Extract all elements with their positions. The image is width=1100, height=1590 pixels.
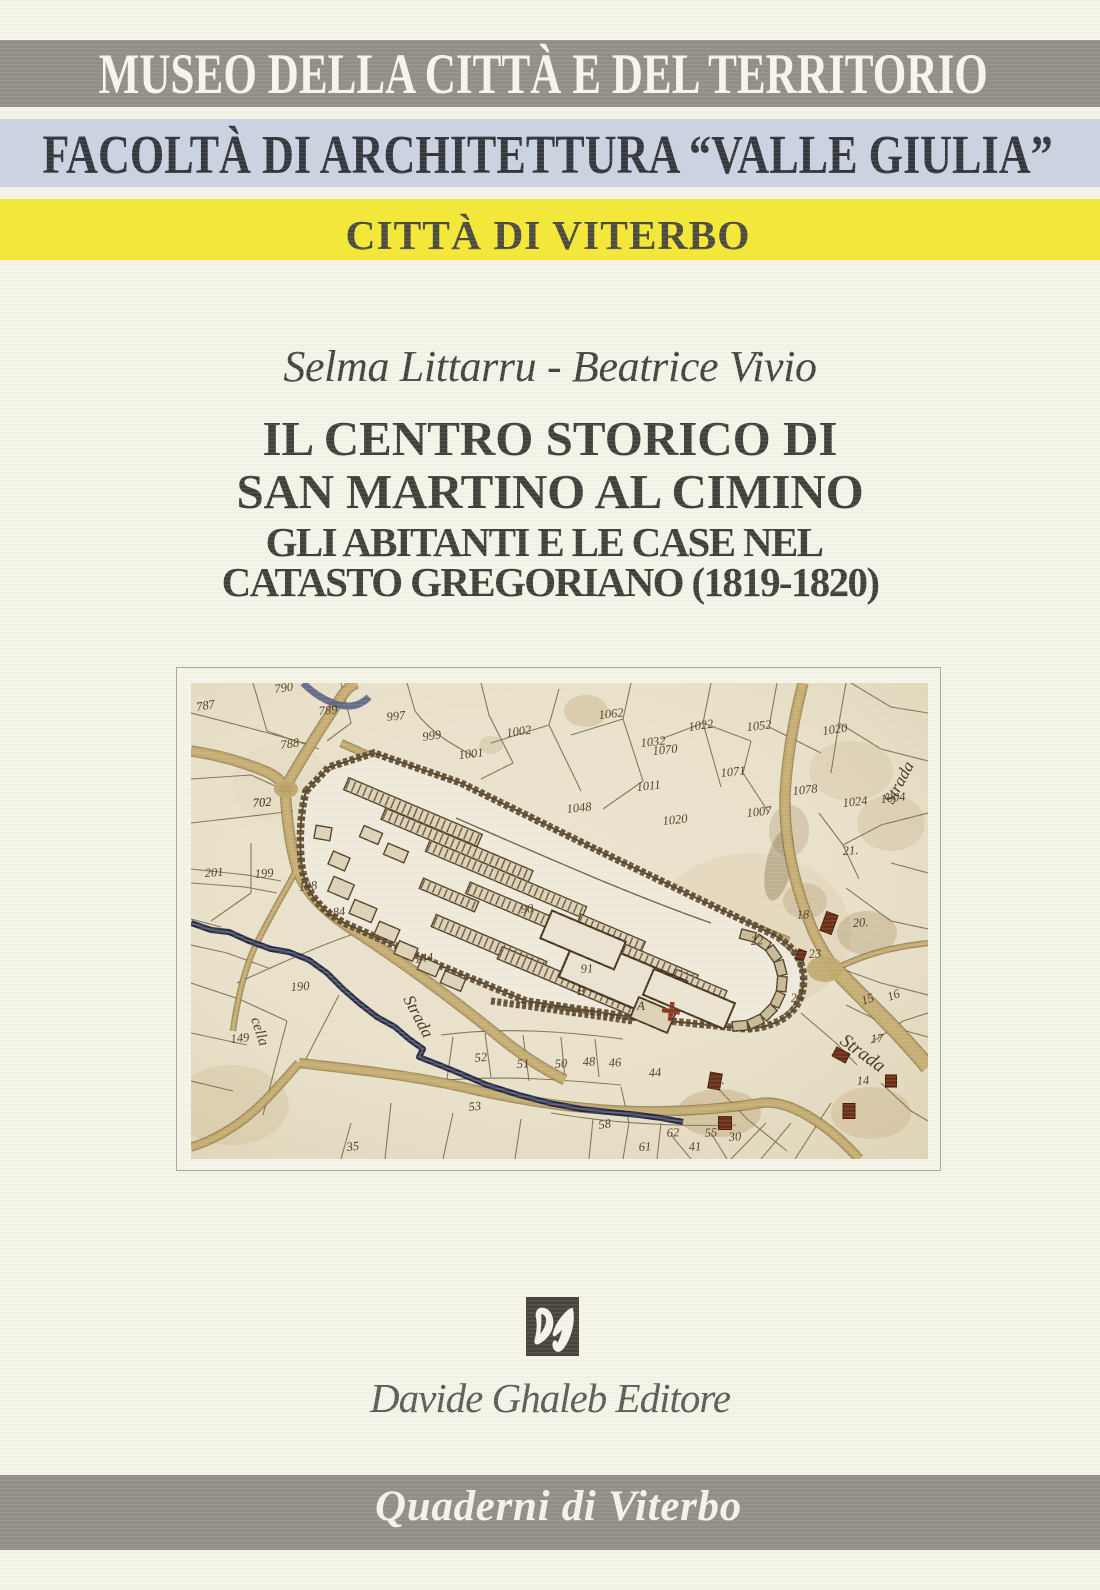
svg-text:30: 30 bbox=[727, 1129, 742, 1144]
svg-text:1024: 1024 bbox=[842, 793, 868, 810]
svg-text:44: 44 bbox=[648, 1065, 661, 1080]
svg-text:199: 199 bbox=[254, 866, 274, 881]
svg-text:788: 788 bbox=[279, 735, 300, 752]
svg-text:62: 62 bbox=[666, 1125, 679, 1140]
svg-text:702: 702 bbox=[252, 795, 272, 810]
svg-text:50: 50 bbox=[554, 1056, 568, 1071]
svg-text:52: 52 bbox=[474, 1050, 488, 1065]
svg-text:23: 23 bbox=[808, 946, 821, 961]
svg-text:35: 35 bbox=[345, 1139, 360, 1154]
svg-text:198: 198 bbox=[298, 878, 319, 894]
svg-text:A: A bbox=[636, 998, 645, 1013]
svg-text:20.: 20. bbox=[852, 915, 869, 930]
svg-text:14: 14 bbox=[856, 1073, 869, 1088]
svg-text:55: 55 bbox=[704, 1125, 717, 1140]
svg-text:22: 22 bbox=[750, 933, 763, 948]
svg-text:1007: 1007 bbox=[746, 803, 773, 820]
svg-text:25: 25 bbox=[790, 990, 803, 1005]
svg-text:997: 997 bbox=[386, 708, 407, 724]
svg-text:51: 51 bbox=[516, 1056, 529, 1071]
svg-text:1071: 1071 bbox=[720, 763, 746, 780]
svg-text:18: 18 bbox=[796, 907, 810, 922]
svg-text:1070: 1070 bbox=[652, 741, 679, 758]
svg-text:17: 17 bbox=[870, 1031, 884, 1046]
svg-text:31.: 31. bbox=[707, 1073, 725, 1088]
svg-text:91: 91 bbox=[580, 961, 593, 976]
svg-text:61: 61 bbox=[638, 1139, 651, 1154]
svg-text:149: 149 bbox=[230, 1030, 251, 1046]
svg-text:46: 46 bbox=[608, 1055, 622, 1070]
svg-text:1062: 1062 bbox=[598, 705, 624, 722]
svg-text:1001: 1001 bbox=[458, 745, 484, 762]
svg-text:1020: 1020 bbox=[662, 811, 689, 828]
svg-text:184: 184 bbox=[326, 904, 346, 920]
svg-text:190: 190 bbox=[290, 979, 310, 994]
svg-text:41: 41 bbox=[688, 1139, 701, 1154]
svg-text:48: 48 bbox=[582, 1054, 596, 1069]
svg-text:144: 144 bbox=[414, 950, 434, 966]
svg-text:999: 999 bbox=[421, 727, 442, 744]
svg-text:1078: 1078 bbox=[792, 781, 819, 798]
svg-text:1052: 1052 bbox=[746, 717, 772, 734]
svg-text:21.: 21. bbox=[842, 843, 859, 858]
svg-text:1048: 1048 bbox=[566, 799, 593, 816]
svg-text:789: 789 bbox=[318, 702, 339, 718]
svg-text:90: 90 bbox=[520, 901, 534, 916]
svg-text:201: 201 bbox=[204, 865, 224, 880]
svg-text:B: B bbox=[577, 983, 585, 998]
svg-text:53: 53 bbox=[468, 1099, 482, 1114]
svg-text:1011: 1011 bbox=[636, 778, 661, 794]
